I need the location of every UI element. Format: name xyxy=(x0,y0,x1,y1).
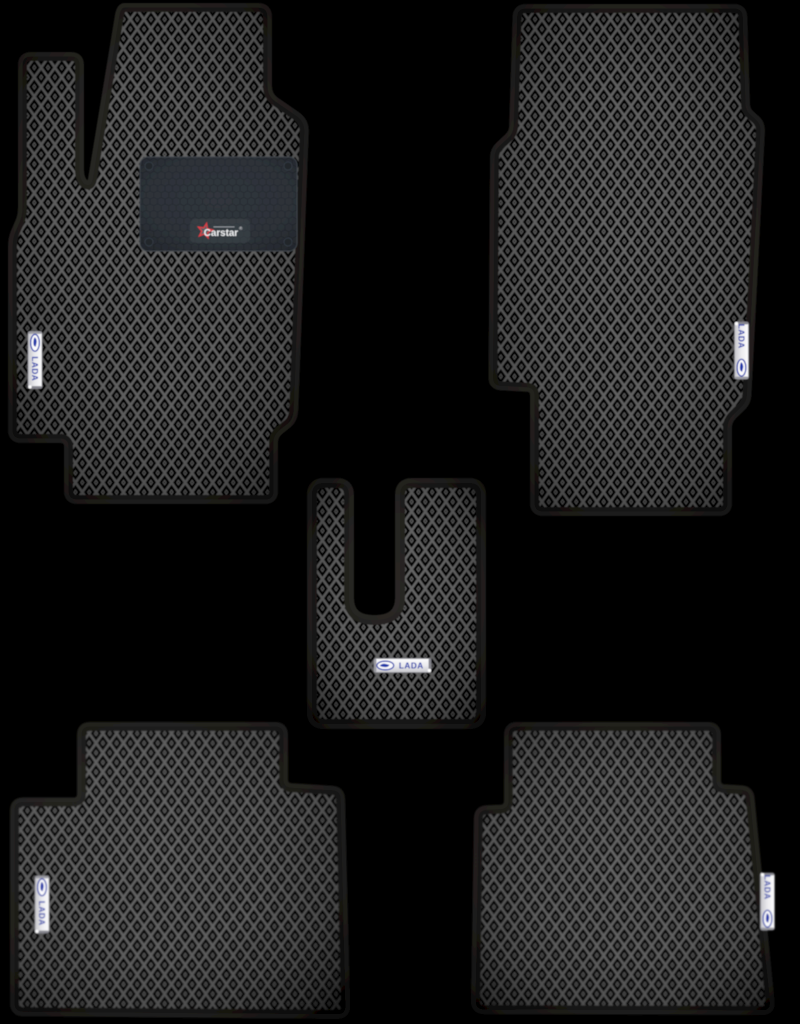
svg-text:Carstar: Carstar xyxy=(204,228,238,239)
